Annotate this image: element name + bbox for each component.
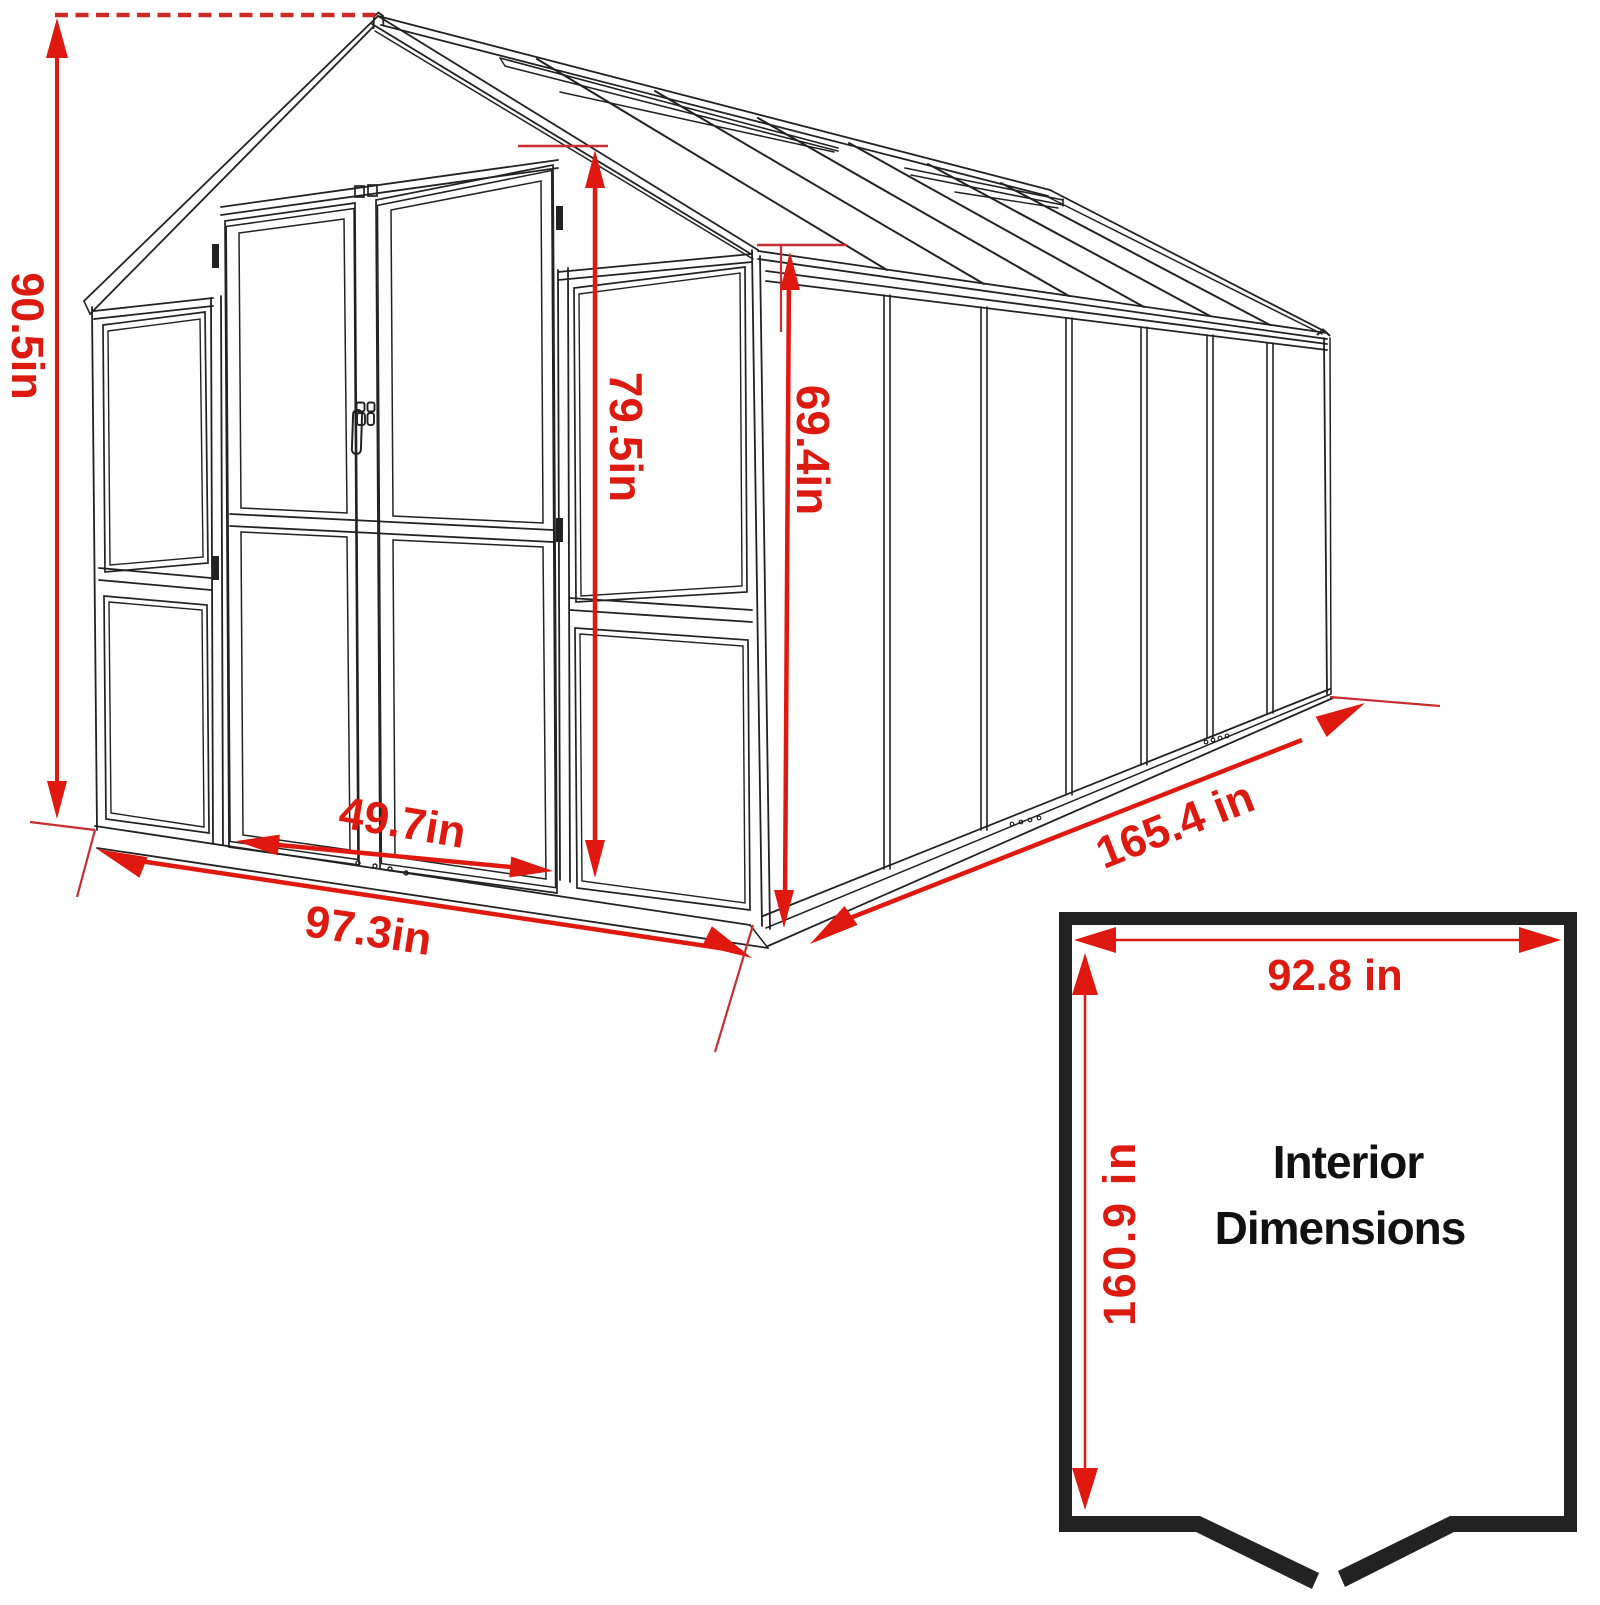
svg-text:Dimensions: Dimensions [1215, 1202, 1466, 1254]
svg-text:92.8 in: 92.8 in [1267, 952, 1402, 1000]
svg-text:Interior: Interior [1273, 1136, 1425, 1188]
svg-text:79.5in: 79.5in [600, 372, 652, 502]
svg-text:160.9 in: 160.9 in [1094, 1140, 1145, 1326]
svg-text:69.4in: 69.4in [787, 385, 839, 515]
svg-text:90.5in: 90.5in [2, 272, 53, 400]
